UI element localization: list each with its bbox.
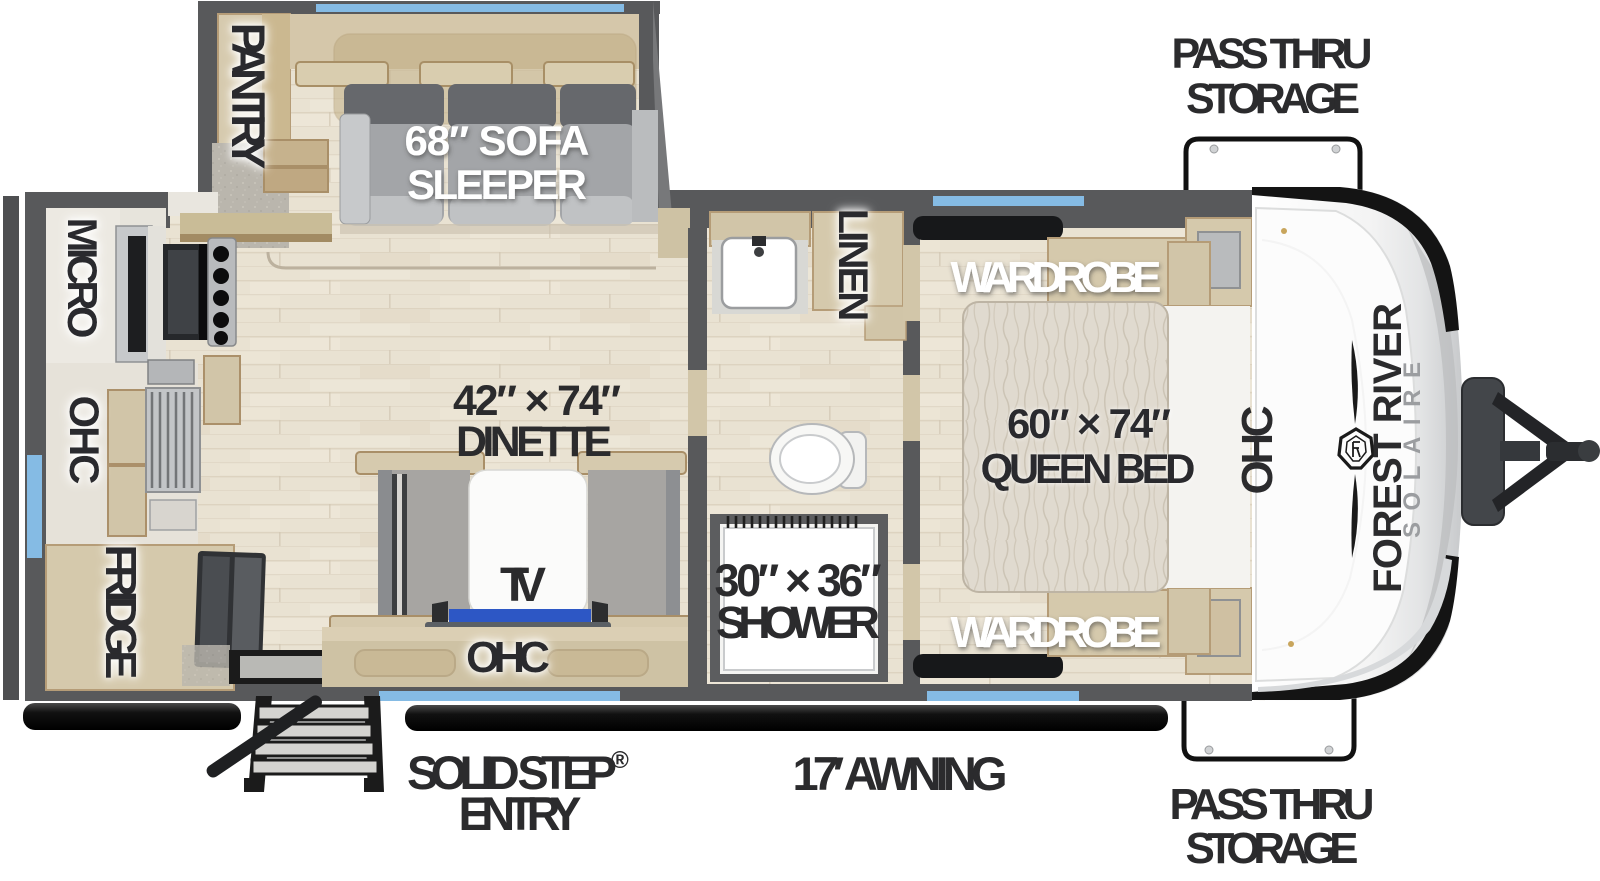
svg-text:17′ AWNING: 17′ AWNING	[793, 747, 1008, 800]
svg-text:QUEEN BED: QUEEN BED	[981, 445, 1196, 492]
svg-text:68″ SOFA: 68″ SOFA	[405, 117, 590, 164]
svg-text:STORAGE: STORAGE	[1186, 75, 1360, 123]
svg-text:OHC: OHC	[1233, 406, 1282, 495]
svg-text:SLEEPER: SLEEPER	[407, 161, 587, 208]
svg-text:WARDROBE: WARDROBE	[951, 253, 1162, 302]
svg-text:PASS THRU: PASS THRU	[1170, 780, 1375, 829]
svg-text:MICRO: MICRO	[59, 218, 106, 339]
svg-text:OHC: OHC	[466, 633, 550, 682]
svg-text:STORAGE: STORAGE	[1186, 824, 1359, 873]
svg-text:ENTRY: ENTRY	[459, 787, 582, 840]
svg-text:OHC: OHC	[61, 396, 108, 485]
svg-text:LINEN: LINEN	[830, 209, 877, 322]
svg-text:PANTRY: PANTRY	[222, 23, 275, 170]
svg-text:PASS THRU: PASS THRU	[1172, 30, 1373, 78]
svg-text:60″ × 74″: 60″ × 74″	[1007, 400, 1171, 447]
svg-text:DINETTE: DINETTE	[456, 418, 612, 466]
svg-text:FRIDGE: FRIDGE	[96, 545, 145, 680]
svg-text:WARDROBE: WARDROBE	[951, 608, 1162, 657]
svg-text:®: ®	[611, 747, 629, 774]
svg-text:SHOWER: SHOWER	[716, 597, 880, 648]
svg-text:TV: TV	[500, 559, 546, 612]
